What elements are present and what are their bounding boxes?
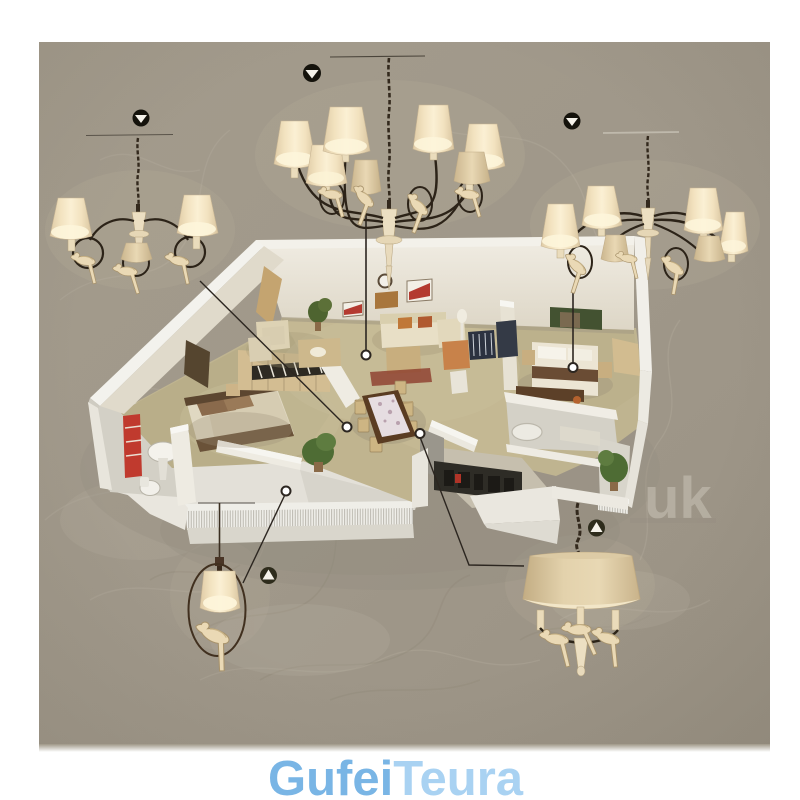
svg-text:GufeiTeura: GufeiTeura <box>268 752 524 800</box>
